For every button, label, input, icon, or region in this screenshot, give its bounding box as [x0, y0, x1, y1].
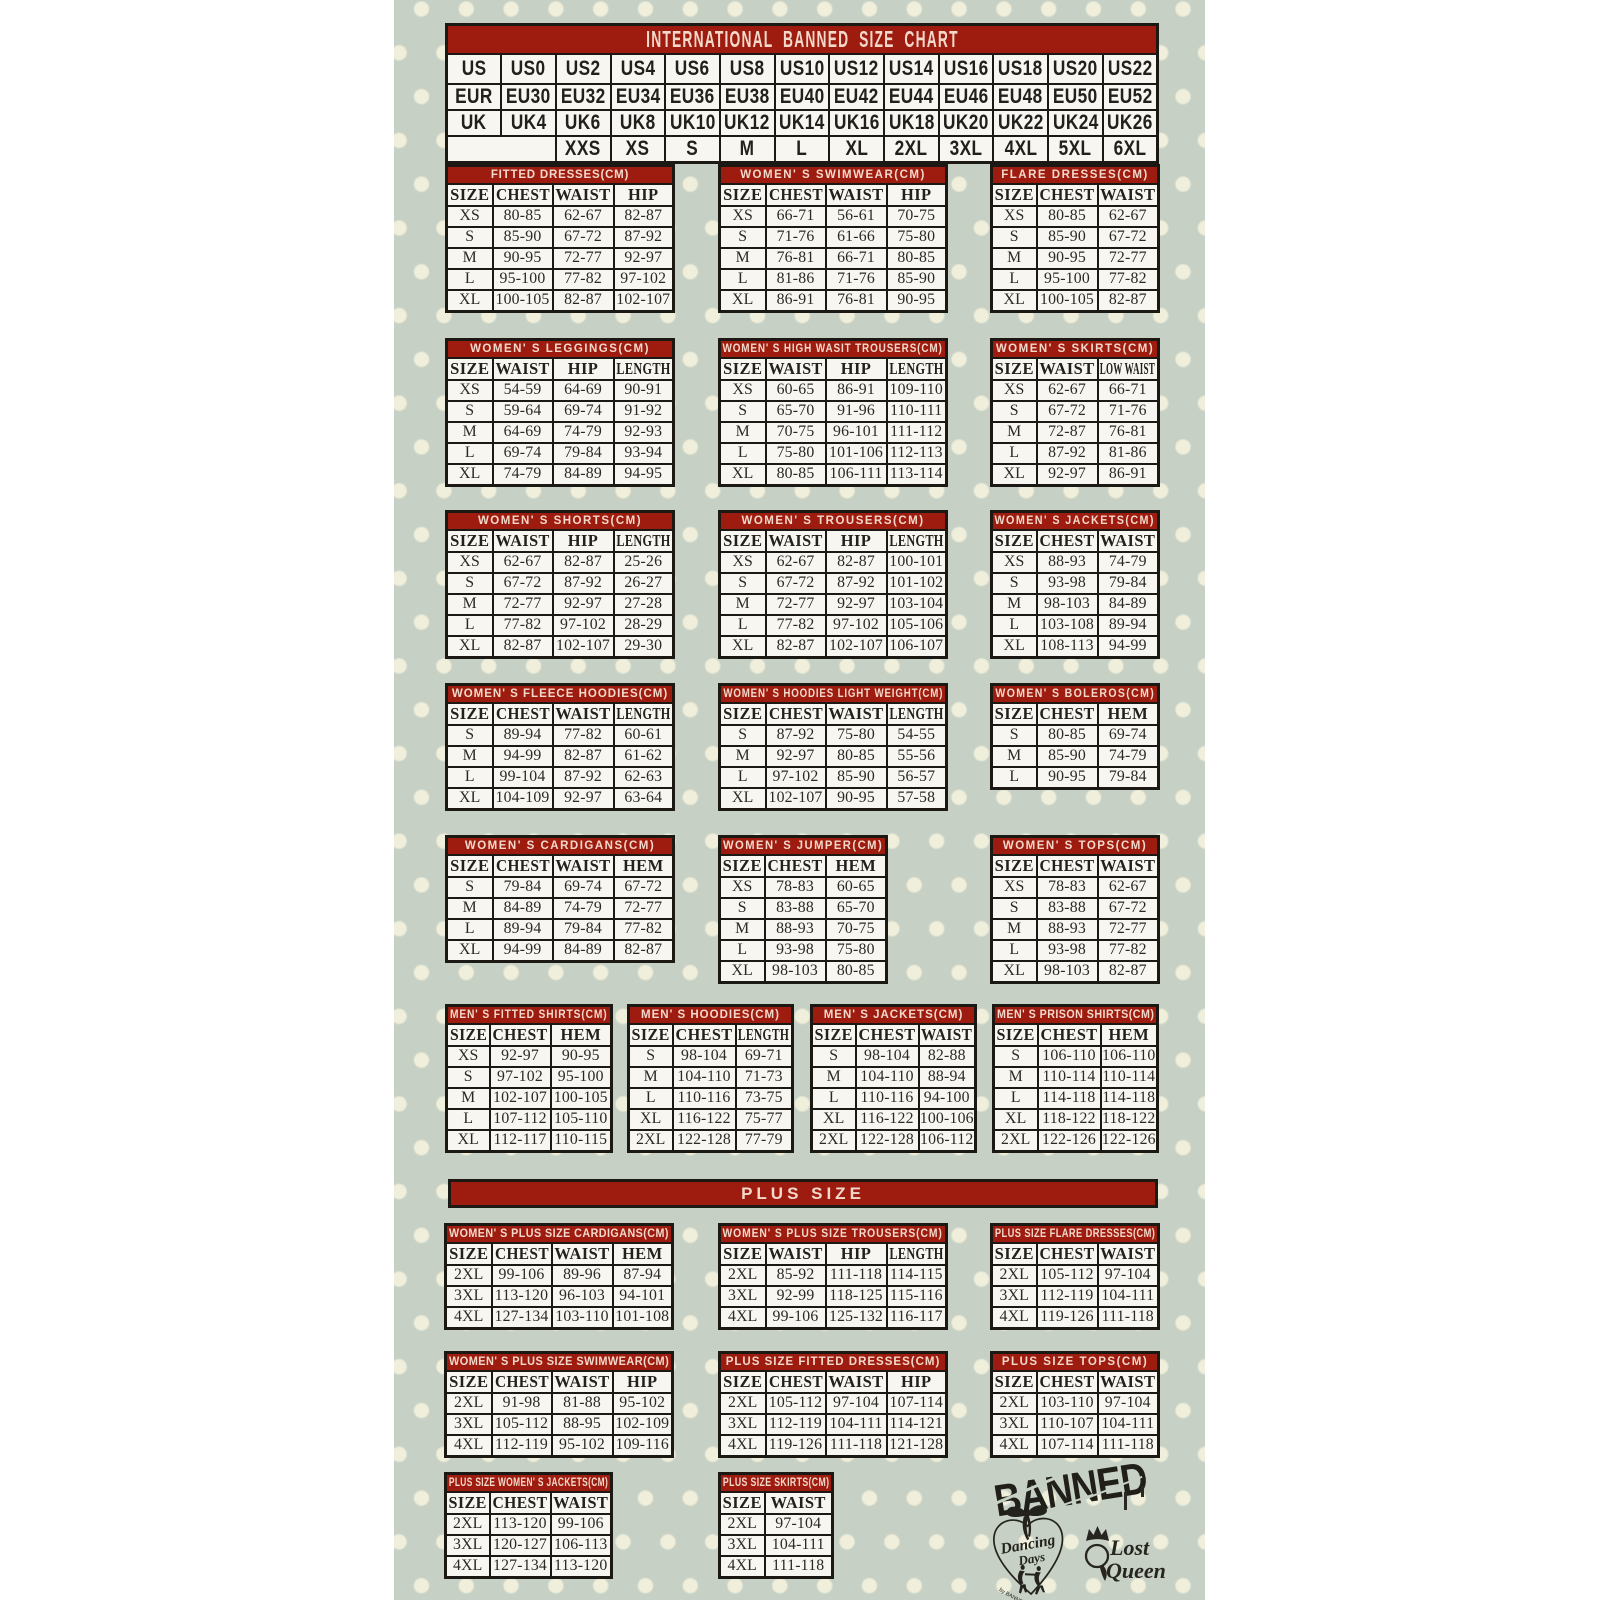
svg-text:by BANNED: by BANNED — [998, 1587, 1027, 1600]
svg-text:Queen: Queen — [1106, 1558, 1166, 1583]
svg-text:Lost: Lost — [1109, 1535, 1150, 1560]
